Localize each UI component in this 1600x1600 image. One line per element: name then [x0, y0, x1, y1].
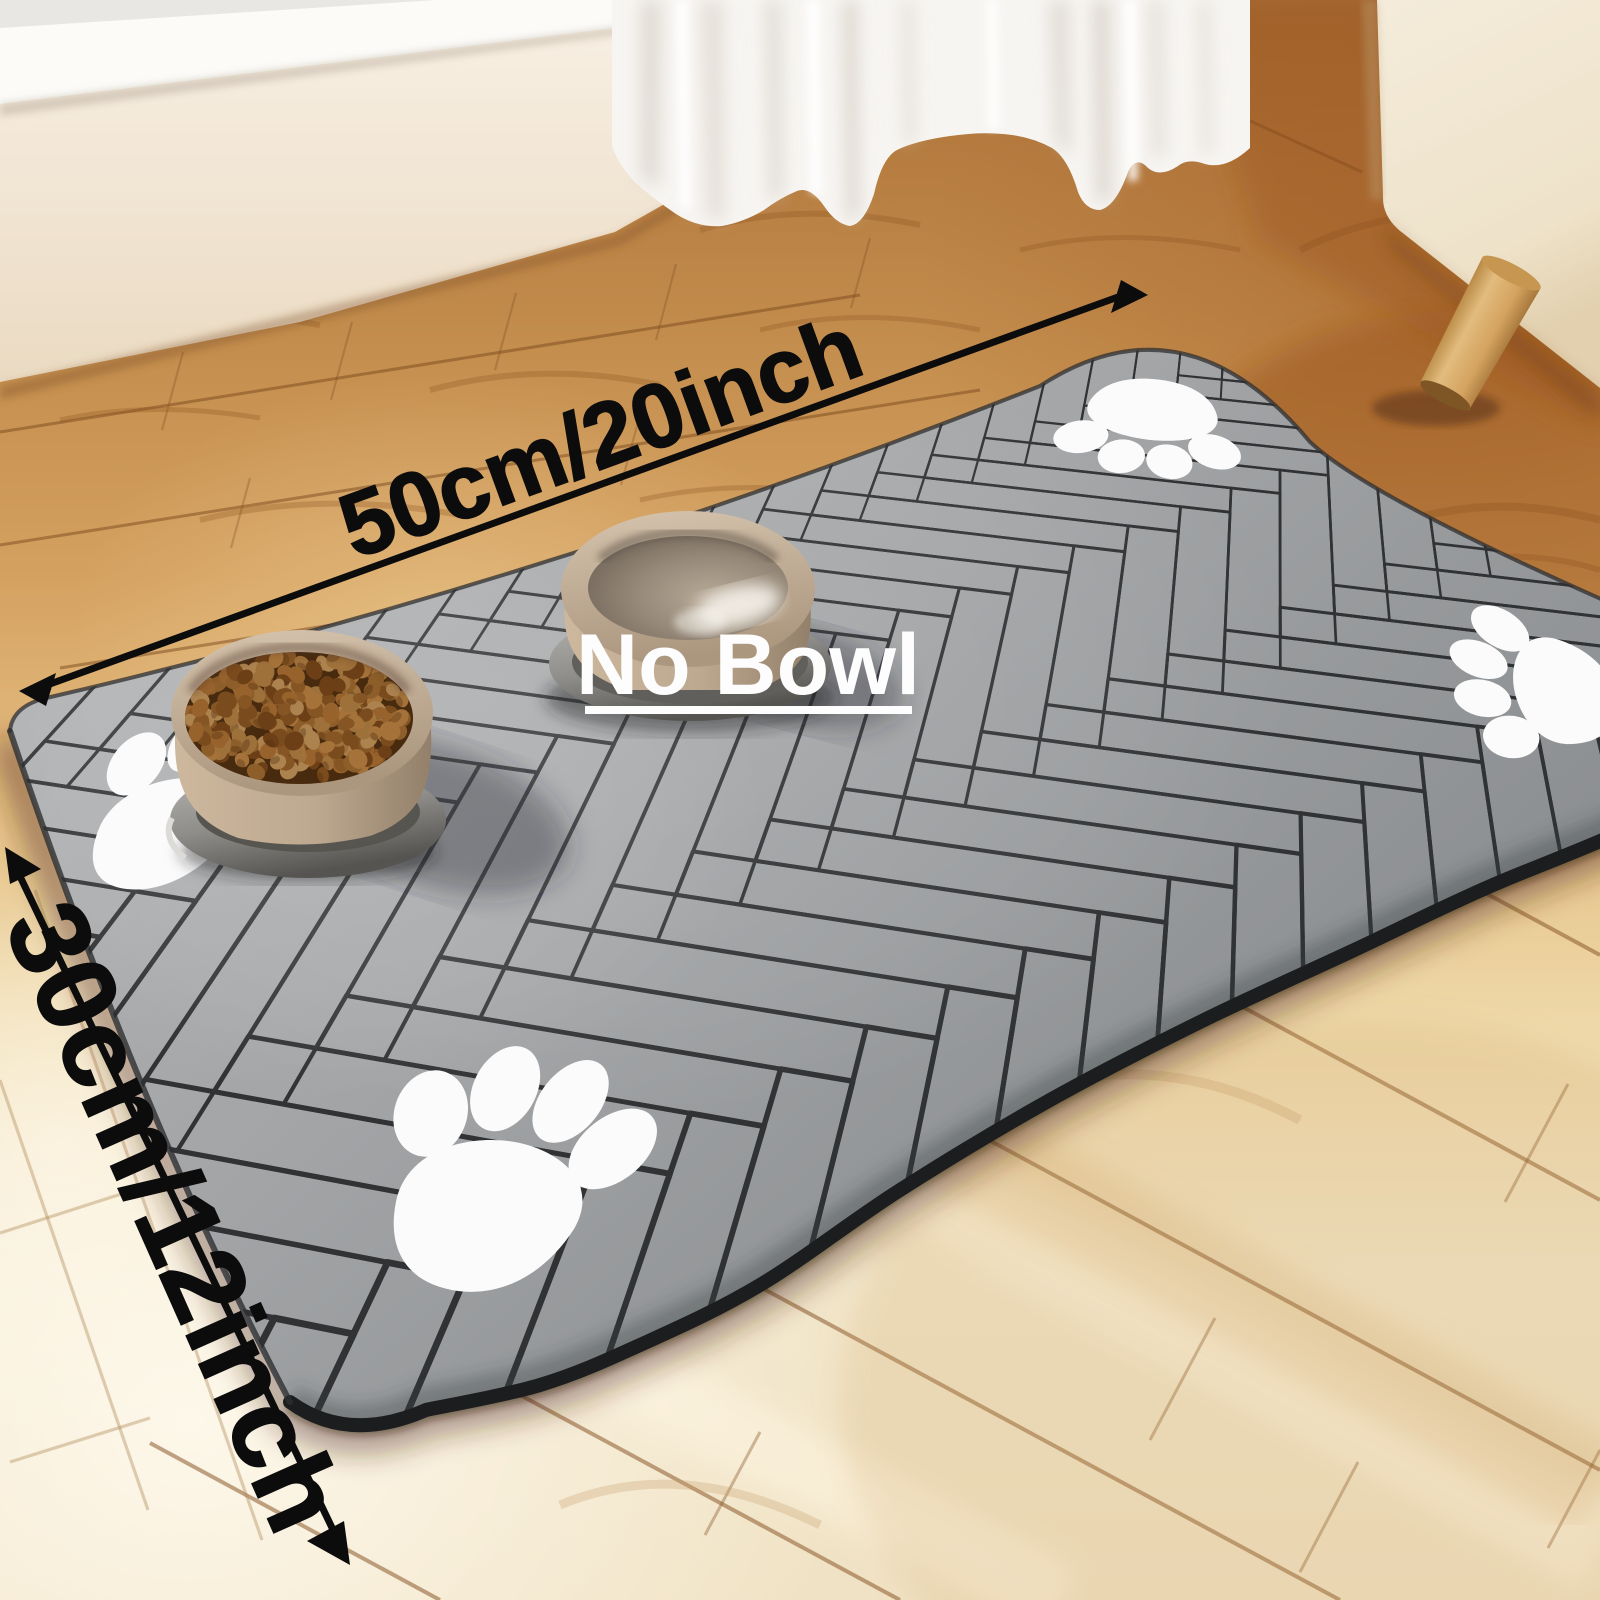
svg-text:No Bowl: No Bowl [576, 617, 920, 713]
